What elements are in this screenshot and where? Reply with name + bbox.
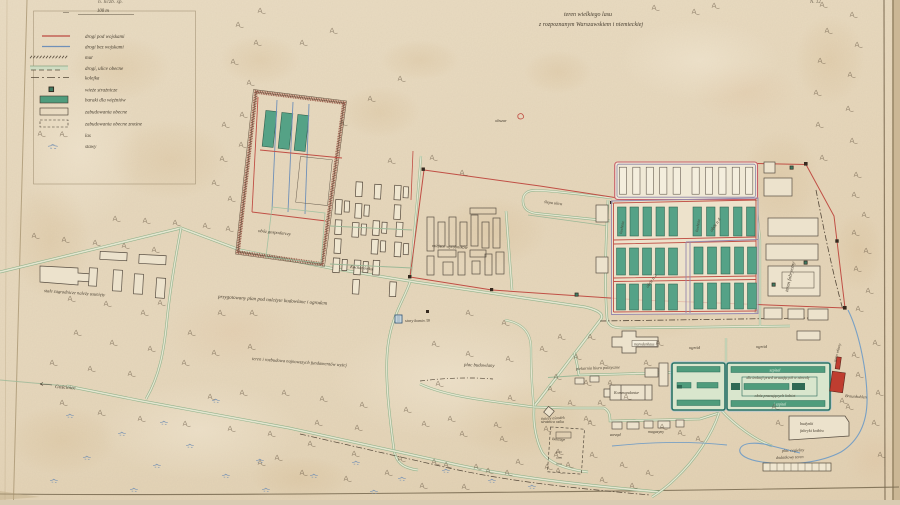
svg-text:dodatkowy teren: dodatkowy teren [776,454,804,460]
svg-text:i szpital: i szpital [774,402,787,407]
svg-text:budynki: budynki [800,421,814,426]
svg-text:marodenhaus: marodenhaus [634,343,655,347]
svg-text:stary komin 39: stary komin 39 [405,318,431,323]
svg-text:dla izolacji przed wracający: dla izolacji przed wracających w niewolę [747,376,810,380]
svg-text:N. 12: N. 12 [809,0,821,5]
svg-text:kolejka: kolejka [85,76,100,81]
svg-text:drogi pod wojskami: drogi pod wojskami [85,35,125,40]
svg-text:stawy: stawy [85,145,97,150]
svg-text:zabudowania obecne znośne: zabudowania obecne znośne [84,122,143,127]
svg-text:baraki dla więźniów: baraki dla więźniów [85,98,126,103]
svg-text:fabryki kotłów: fabryki kotłów [800,428,824,433]
svg-text:teren wielkiego lasu: teren wielkiego lasu [564,12,612,18]
svg-text:ogród: ogród [689,345,701,350]
svg-text:z rozpoznanym Warszawskiem: z rozpoznanym Warszawskiem i niemieckiej [538,22,644,28]
svg-text:drogi bez wojskami: drogi bez wojskami [85,45,124,50]
svg-text:obóz pracujących kobiet: obóz pracujących kobiet [755,393,797,398]
svg-text:magazyny: magazyny [648,429,664,434]
svg-text:mur: mur [85,56,93,61]
svg-text:ogród: ogród [756,344,768,349]
svg-text:wieże strażnicze: wieże strażnicze [85,88,118,93]
svg-text:n. liczb. sp.: n. liczb. sp. [98,0,123,5]
svg-text:zabudowania obecne: zabudowania obecne [84,110,128,115]
svg-text:plac cegielny: plac cegielny [781,447,805,453]
svg-text:zarząd: zarząd [609,432,622,437]
svg-text:100 m: 100 m [97,9,109,14]
svg-text:las: las [85,134,91,139]
svg-text:drogi, ulice obecne: drogi, ulice obecne [85,67,124,72]
svg-text:szpital: szpital [770,368,782,373]
svg-text:obszar: obszar [495,118,507,123]
